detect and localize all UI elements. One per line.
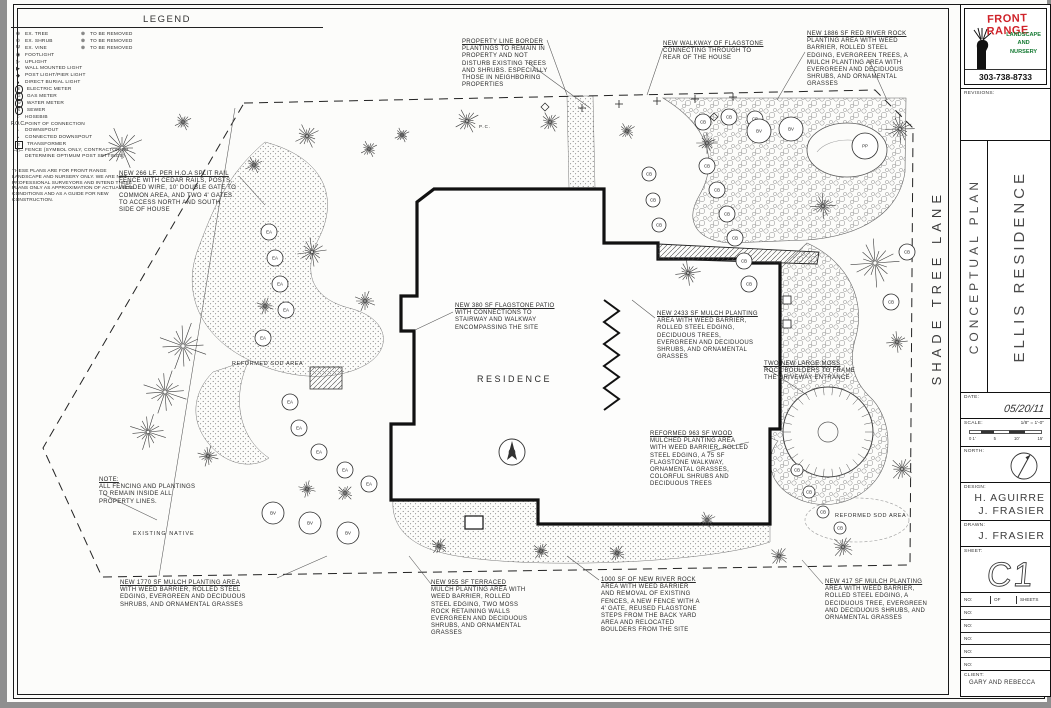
- disclaimer-note: THESE PLANS ARE FOR FRONT RANGE LANDSCAP…: [12, 169, 134, 204]
- legend-item: ΨEX. VINE⊗TO BE REMOVED: [11, 45, 323, 52]
- street-name-label: SHADE TREE LANE: [929, 190, 944, 385]
- sheet-index-table: NO: OF SHEETS NO:NO:NO:NO:NO:: [961, 593, 1050, 671]
- legend-symbol-icon: ▫: [11, 128, 25, 134]
- legend-item: ⊕EX. TREE⊗TO BE REMOVED: [11, 31, 323, 38]
- sheet-index-row: NO:: [961, 644, 1050, 657]
- legend-item-label: WATER METER: [27, 101, 64, 106]
- col-no: NO:: [961, 596, 991, 604]
- legend-symbol-icon: Ψ: [11, 45, 25, 51]
- legend-symbol-icon: P.O.C.: [11, 121, 25, 127]
- col-sheets: SHEETS: [1017, 596, 1050, 604]
- residence-label: RESIDENCE: [477, 374, 552, 384]
- project-title-section: CONCEPTUAL PLAN ELLIS RESIDENCE: [961, 141, 1050, 393]
- callout-moss-rock-boulders: TWO NEW LARGE MOSS ROCK BOULDERS TO FRAM…: [764, 361, 856, 383]
- project-name-label: ELLIS RESIDENCE: [1011, 170, 1028, 363]
- callout-flagstone-patio: NEW 380 SF FLAGSTONE PATIO WITH CONNECTI…: [455, 303, 561, 332]
- callout-split-rail-fence: NEW 266 LF. PER H.O.A SPLIT RAIL FENCE W…: [119, 171, 237, 214]
- legend-item: ◉FOOTLIGHT: [11, 52, 323, 59]
- callout-mulch-417: NEW 417 SF MULCH PLANTING AREA WITH WEED…: [825, 579, 931, 622]
- date-label: DATE:: [964, 395, 979, 400]
- client-label: CLIENT:: [964, 673, 984, 678]
- callout-red-river-rock: NEW 1886 SF RED RIVER ROCK PLANTING AREA…: [807, 31, 911, 89]
- scale-value: 1/8" = 1'-0": [1021, 421, 1044, 426]
- title-block: FRONT RANGE LANDSCAPE AND NURSERY 303-73…: [960, 4, 1051, 697]
- company-logo: FRONT RANGE LANDSCAPE AND NURSERY 303-73…: [961, 5, 1050, 89]
- svg-text:C1: C1: [985, 556, 1036, 593]
- legend-item-label: POINT OF CONNECTION: [25, 122, 85, 127]
- callout-mulch-2433: NEW 2433 SF MULCH PLANTING AREA WITH WEE…: [657, 311, 759, 361]
- date-value: 05/20/11: [1003, 403, 1045, 415]
- design-label: DESIGN:: [964, 485, 986, 490]
- legend-item: ▶WALL MOUNTED LIGHT: [11, 65, 323, 72]
- sheet-index-row: NO:: [961, 606, 1050, 619]
- client-section: CLIENT: GARY AND REBECCA: [961, 671, 1050, 696]
- plan-sheet: CBCBCBCBCBCBCBCBCBCBCBCBCBCBCBCBCBCBEAEA…: [7, 0, 1047, 702]
- scale-tick: 15': [1038, 436, 1043, 441]
- reformed-sod-area-label: REFORMED SOD AREA: [232, 361, 303, 367]
- callout-reformed-wood-mulch: REFORMED 963 SF WOOD MULCHED PLANTING AR…: [650, 431, 752, 489]
- legend-item: GGAS METER: [11, 93, 323, 100]
- logo-tagline-line: NURSERY: [1006, 48, 1041, 56]
- drawn-label: DRAWN:: [964, 523, 985, 528]
- legend-item-label: CONNECTED DOWNSPOUT: [25, 135, 92, 140]
- legend: LEGEND ⊕EX. TREE⊗TO BE REMOVED⊙EX. SHRUB…: [11, 14, 323, 161]
- scale-tick: 10': [1014, 436, 1019, 441]
- scale-bar: [969, 428, 1045, 436]
- legend-items: ⊕EX. TREE⊗TO BE REMOVED⊙EX. SHRUB⊗TO BE …: [11, 31, 323, 161]
- sheet-number: C1: [985, 553, 1041, 593]
- legend-item: ▪CONNECTED DOWNSPOUT: [11, 134, 323, 141]
- legend-symbol-icon: ▷: [11, 59, 25, 65]
- legend-item: ◆POST LIGHT/PIER LIGHT: [11, 72, 323, 79]
- legend-removed-label: TO BE REMOVED: [90, 46, 133, 51]
- logo-tagline-line: LANDSCAPE: [1006, 31, 1041, 39]
- legend-symbol-icon: ▶: [11, 66, 25, 72]
- sheet-index-row: NO:: [961, 619, 1050, 632]
- legend-item: P.O.C.POINT OF CONNECTION: [11, 121, 323, 128]
- legend-symbol-icon: ⊙: [11, 38, 25, 44]
- callout-river-rock-1000: 1000 SF OF NEW RIVER ROCK AREA WITH WEED…: [601, 577, 701, 635]
- legend-item-label: FOOTLIGHT: [25, 53, 54, 58]
- legend-item-label: UPLIGHT: [25, 60, 47, 65]
- legend-item-label: FENCE (SYMBOL ONLY, CONTRACTOR TO DETERM…: [25, 148, 145, 160]
- legend-removed-label: TO BE REMOVED: [90, 32, 133, 37]
- designer-name: J. FRASIER: [978, 505, 1045, 517]
- callout-mulch-1770: NEW 1770 SF MULCH PLANTING AREA WITH WEE…: [120, 580, 256, 609]
- callout-terraced-mulch: NEW 955 SF TERRACED MULCH PLANTING AREA …: [431, 580, 531, 638]
- legend-item-label: POST LIGHT/PIER LIGHT: [25, 73, 86, 78]
- drawn-section: DRAWN: J. FRASIER: [961, 521, 1050, 547]
- legend-item-label: TRANSFORMER: [27, 142, 66, 147]
- drafter-name: J. FRASIER: [978, 530, 1045, 542]
- sheet-index-row: NO:: [961, 632, 1050, 645]
- col-of: OF: [991, 596, 1017, 604]
- legend-symbol-icon: ○: [11, 114, 25, 120]
- logo-phone-number: 303-738-8733: [965, 69, 1046, 82]
- scale-section: SCALE: 1/8" = 1'-0" 0 1' 5 10' 15': [961, 419, 1050, 447]
- logo-tagline: LANDSCAPE AND NURSERY: [1006, 31, 1041, 56]
- revisions-section: REVISIONS:: [961, 89, 1050, 141]
- north-label: NORTH:: [964, 449, 984, 454]
- sheet-index-row: NO:: [961, 657, 1050, 670]
- legend-removed-label: TO BE REMOVED: [90, 39, 133, 44]
- callout-fencing-note: NOTE: ALL FENCING AND PLANTINGS TO REMAI…: [99, 477, 211, 506]
- logo-tagline-line: AND: [1006, 39, 1041, 47]
- legend-item: ○HOSEBIB: [11, 114, 323, 121]
- plan-type-label: CONCEPTUAL PLAN: [967, 178, 981, 354]
- scale-tick: 0 1': [969, 436, 976, 441]
- sheet-section: SHEET: C1: [961, 547, 1050, 593]
- legend-removed-icon: ⊗: [76, 31, 90, 37]
- north-section: NORTH:: [961, 447, 1050, 483]
- design-section: DESIGN: H. AGUIRRE J. FRASIER: [961, 483, 1050, 521]
- legend-item-label: DOWNSPOUT: [25, 128, 59, 133]
- legend-item: EELECTRIC METER: [11, 86, 323, 93]
- reformed-sod-area-label: REFORMED SOD AREA: [835, 513, 906, 519]
- callout-flagstone-walkway: NEW WALKWAY OF FLAGSTONE CONNECTING THRO…: [663, 41, 765, 63]
- north-arrow-icon: [1008, 450, 1040, 482]
- legend-title: LEGEND: [11, 14, 323, 28]
- poc-label: P.C.: [479, 124, 491, 129]
- legend-item-label: HOSEBIB: [25, 115, 48, 120]
- legend-item: ▷UPLIGHT: [11, 59, 323, 66]
- legend-item-label: GAS METER: [27, 94, 57, 99]
- legend-removed-icon: ⊗: [76, 45, 90, 51]
- legend-item-label: WALL MOUNTED LIGHT: [25, 66, 82, 71]
- legend-item: WWATER METER: [11, 100, 323, 107]
- callout-property-line-border: PROPERTY LINE BORDER PLANTINGS TO REMAIN…: [462, 39, 557, 89]
- legend-item-label: EX. VINE: [25, 46, 76, 51]
- legend-item-label: SEWER: [27, 108, 46, 113]
- legend-item-label: ELECTRIC METER: [27, 87, 72, 92]
- scale-tick-labels: 0 1' 5 10' 15': [969, 436, 1043, 441]
- legend-item: ●DIRECT BURIAL LIGHT: [11, 79, 323, 86]
- legend-item: SSEWER: [11, 107, 323, 114]
- sheet-index-header: NO: OF SHEETS: [961, 593, 1050, 606]
- legend-symbol-icon: ◆: [11, 73, 25, 79]
- legend-removed-icon: ⊗: [76, 38, 90, 44]
- scale-tick: 5: [994, 436, 996, 441]
- client-name: GARY AND REBECCA: [969, 680, 1035, 686]
- designer-name: H. AGUIRRE: [974, 492, 1045, 504]
- revisions-label: REVISIONS:: [964, 91, 994, 96]
- existing-native-label: EXISTING NATIVE: [133, 531, 195, 537]
- legend-item: ▫DOWNSPOUT: [11, 127, 323, 134]
- legend-symbol-icon: ⊕: [11, 31, 25, 37]
- sheet-label: SHEET:: [964, 549, 983, 554]
- legend-item-label: EX. SHRUB: [25, 39, 76, 44]
- legend-symbol-icon: ─□─: [11, 148, 25, 154]
- scale-label: SCALE:: [964, 421, 983, 426]
- legend-symbol-icon: ◉: [11, 52, 25, 58]
- date-section: DATE: 05/20/11: [961, 393, 1050, 419]
- legend-item-label: EX. TREE: [25, 32, 76, 37]
- legend-item: ─□─FENCE (SYMBOL ONLY, CONTRACTOR TO DET…: [11, 148, 323, 160]
- legend-item-label: DIRECT BURIAL LIGHT: [25, 80, 81, 85]
- legend-item: ⊙EX. SHRUB⊗TO BE REMOVED: [11, 38, 323, 45]
